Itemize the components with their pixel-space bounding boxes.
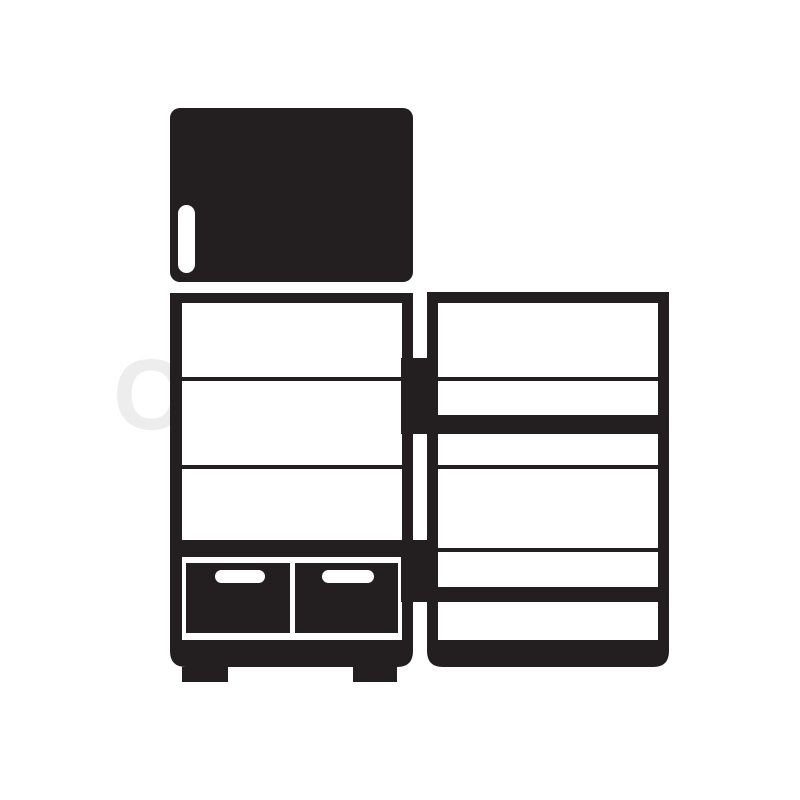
drawer-left-handle bbox=[215, 570, 265, 583]
fridge-foot-left bbox=[182, 667, 228, 682]
fridge-shelf-2 bbox=[182, 465, 402, 469]
fridge-shelf-1 bbox=[182, 377, 402, 381]
freezer-door-handle bbox=[178, 205, 195, 273]
door-shelf-bar-1 bbox=[438, 415, 658, 434]
hinge-connector-top bbox=[401, 358, 438, 434]
door-shelf-line-1 bbox=[438, 377, 658, 381]
door-shelf-bar-2 bbox=[438, 587, 658, 602]
hinge-connector-bottom bbox=[401, 540, 438, 602]
refrigerator-icon bbox=[0, 0, 800, 800]
door-shelf-line-2 bbox=[438, 465, 658, 469]
drawer-right-handle bbox=[322, 570, 374, 583]
freezer-door bbox=[170, 108, 413, 282]
door-shelf-line-3 bbox=[438, 548, 658, 552]
fridge-interior bbox=[182, 303, 402, 540]
fridge-foot-right bbox=[353, 667, 397, 682]
stock-image-canvas: Colourbox bbox=[0, 0, 800, 800]
